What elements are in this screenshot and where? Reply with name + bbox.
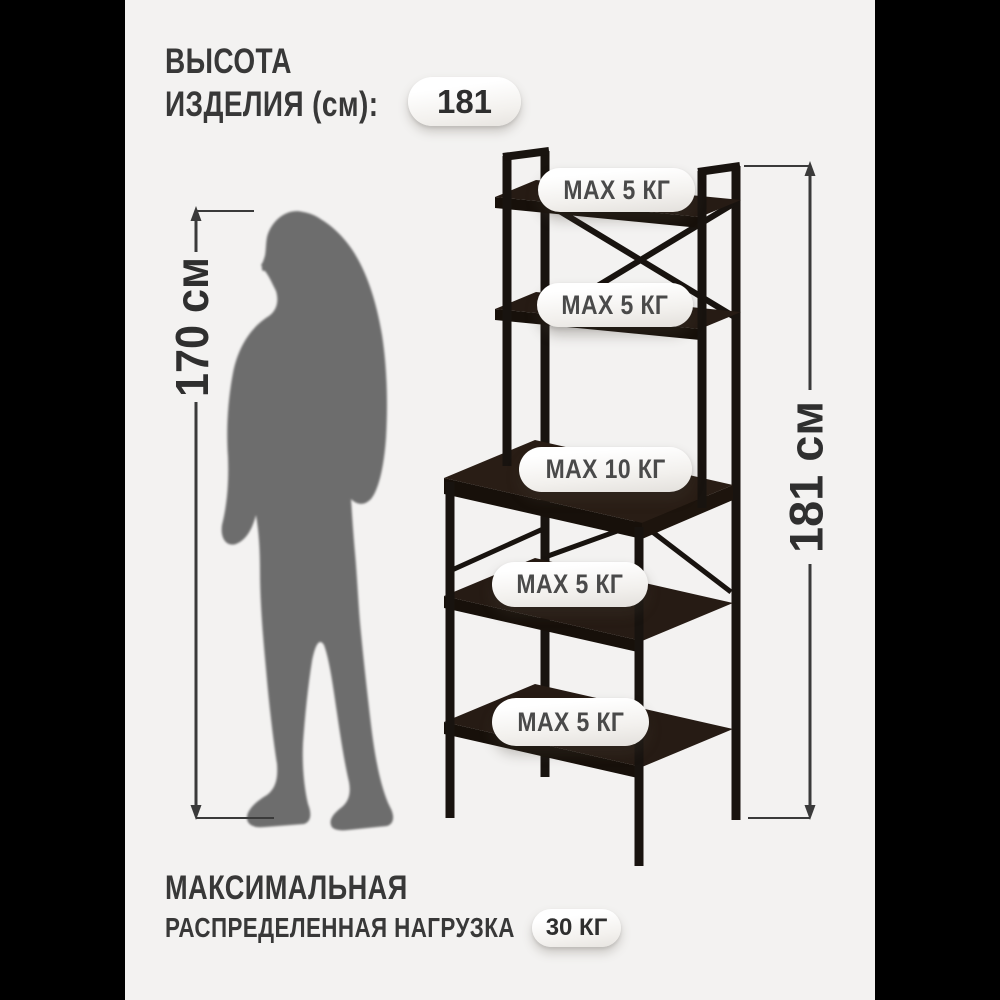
rack-cross-braces <box>452 204 733 592</box>
shelf-load-label: MAX 5 КГ <box>563 175 670 206</box>
woman-body-shape <box>222 211 393 830</box>
shelf-load-pill: MAX 10 КГ <box>519 447 692 492</box>
person-height-label: 170 см <box>166 257 218 397</box>
pillarbox-background: ВЫСОТА ИЗДЕЛИЯ (см): 181 <box>0 0 1000 1000</box>
shelf-load-label: MAX 5 КГ <box>562 290 669 321</box>
rack-height-label: 181 см <box>779 401 832 553</box>
shelf-load-label: MAX 5 КГ <box>517 569 624 600</box>
dimension-line-rack: 181 см <box>744 161 832 820</box>
shelf-load-label: MAX 10 КГ <box>545 454 665 485</box>
load-value-badge: 30 КГ <box>532 909 621 947</box>
shelf-load-pill: MAX 5 КГ <box>537 283 693 327</box>
shelf-load-pill: MAX 5 КГ <box>492 562 648 607</box>
load-value: 30 КГ <box>546 914 608 942</box>
product-infographic: ВЫСОТА ИЗДЕЛИЯ (см): 181 <box>125 0 875 1000</box>
scene-drawing: 170 см 181 см <box>125 0 875 1000</box>
footer-title-line2: РАСПРЕДЕЛЕННАЯ НАГРУЗКА <box>165 913 515 944</box>
shelf-load-pill: MAX 5 КГ <box>492 698 649 746</box>
person-silhouette <box>222 211 393 830</box>
footer-title-line1: МАКСИМАЛЬНАЯ <box>165 870 408 907</box>
shelf-load-pill: MAX 5 КГ <box>538 168 695 212</box>
rack-drawing <box>444 151 741 866</box>
shelf-load-label: MAX 5 КГ <box>517 707 624 738</box>
